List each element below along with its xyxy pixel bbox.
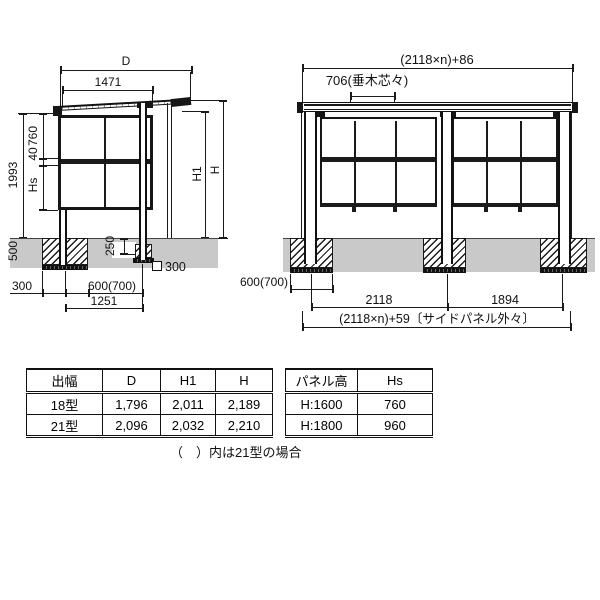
roof-beam-line xyxy=(304,109,571,110)
tick xyxy=(191,66,193,74)
ext-line xyxy=(18,113,58,114)
ext-line xyxy=(190,100,224,101)
ext-line xyxy=(182,111,206,112)
gravel-base xyxy=(42,265,88,270)
ext-line xyxy=(572,72,573,102)
roof-front-edge xyxy=(171,97,192,107)
cell-type: 21型 xyxy=(27,415,103,437)
dim-label-total-top: (2118×n)+86 xyxy=(400,53,474,66)
dim-label-1993: 1993 xyxy=(7,162,19,189)
cell-h1: 2,032 xyxy=(161,415,216,437)
tick xyxy=(142,304,144,312)
square-symbol xyxy=(152,261,162,271)
front-support-line xyxy=(167,103,168,238)
dim-label-300: 300 xyxy=(12,280,32,292)
tick xyxy=(120,238,128,240)
roof-beam-line xyxy=(304,104,571,106)
ext-line xyxy=(302,311,303,331)
dim-label-h: H xyxy=(209,166,221,175)
ext-line xyxy=(60,72,61,107)
dim-label-h1: H1 xyxy=(191,166,203,181)
ext-line xyxy=(302,72,303,102)
dim-label-760: 760 xyxy=(27,126,39,146)
gravel-base xyxy=(540,268,587,273)
table-header-row: パネル高 Hs xyxy=(286,369,433,393)
tick xyxy=(302,64,304,72)
cell-panel-height: H:1800 xyxy=(286,415,358,437)
cell-panel-height: H:1600 xyxy=(286,393,358,415)
col-header-h1: H1 xyxy=(161,369,216,393)
dim-line xyxy=(60,70,192,71)
panel-foot xyxy=(393,207,397,212)
cell-d: 1,796 xyxy=(103,393,161,415)
front-support-line xyxy=(171,103,172,238)
post xyxy=(304,112,317,264)
dim-label-600-700: 600(700) xyxy=(88,280,136,292)
col-header-dehaba: 出幅 xyxy=(27,369,103,393)
spec-table: 出幅 D H1 H 18型 1,796 2,011 2,189 21型 2,09… xyxy=(26,368,273,438)
ext-line xyxy=(39,165,58,166)
dim-label-706: 706(垂木芯々) xyxy=(326,74,408,87)
gravel-base xyxy=(423,268,466,273)
ext-line xyxy=(65,271,66,291)
ext-line xyxy=(311,274,312,310)
panel-mullion xyxy=(354,121,356,203)
roof-end-cap xyxy=(572,102,578,113)
panel-mullion xyxy=(520,121,522,203)
tick xyxy=(572,64,574,72)
dim-label-d: D xyxy=(122,55,131,67)
dim-line xyxy=(350,96,395,97)
tick xyxy=(65,304,67,312)
front-post xyxy=(139,103,147,260)
dim-line xyxy=(311,307,563,308)
table-row: 18型 1,796 2,011 2,189 xyxy=(27,393,273,415)
tick xyxy=(62,86,64,94)
ext-line xyxy=(39,210,58,211)
ext-line xyxy=(142,264,143,308)
cell-type: 18型 xyxy=(27,393,103,415)
table-row: H:1600 760 xyxy=(286,393,433,415)
ext-line xyxy=(42,271,43,291)
dim-line xyxy=(43,113,44,210)
dim-line xyxy=(205,111,206,238)
panel-foot xyxy=(484,207,488,212)
cell-h: 2,189 xyxy=(216,393,273,415)
dim-label-1251: 1251 xyxy=(91,295,118,307)
roof-end-cap xyxy=(297,102,303,113)
ext-line xyxy=(332,274,333,292)
cell-h1: 2,011 xyxy=(161,393,216,415)
gravel-base xyxy=(290,268,333,273)
ext-line xyxy=(120,254,135,255)
panel-rail xyxy=(322,157,435,162)
ext-line xyxy=(562,274,563,310)
table-row: 21型 2,096 2,032 2,210 xyxy=(27,415,273,437)
post xyxy=(558,112,571,264)
dim-label-2118: 2118 xyxy=(366,294,393,307)
cell-hs: 960 xyxy=(358,415,433,437)
col-header-hs: Hs xyxy=(358,369,433,393)
panel-foot xyxy=(518,207,522,212)
side-panel-outer-line xyxy=(571,112,572,238)
rear-post xyxy=(59,210,67,265)
panel-bottom-rail xyxy=(452,203,558,207)
ext-line xyxy=(39,158,58,159)
panel-mullion xyxy=(486,121,488,203)
panel-rail xyxy=(454,157,556,162)
side-panel-outer-line xyxy=(301,112,302,238)
cell-hs: 760 xyxy=(358,393,433,415)
cell-d: 2,096 xyxy=(103,415,161,437)
dim-line xyxy=(302,327,571,328)
panel-bay xyxy=(320,117,437,207)
col-header-h: H xyxy=(216,369,273,393)
ext-line xyxy=(447,274,448,310)
panel-height-table: パネル高 Hs H:1600 760 H:1800 960 xyxy=(285,368,433,438)
dim-label-footing-300: 300 xyxy=(165,261,186,274)
dim-line xyxy=(223,100,224,238)
dim-label-500: 500 xyxy=(7,241,19,261)
panel-rail xyxy=(61,159,150,164)
footnote: （ ）内は21型の場合 xyxy=(170,446,301,459)
dim-label-40: 40 xyxy=(27,147,39,160)
dim-line xyxy=(62,90,153,91)
col-header-d: D xyxy=(103,369,161,393)
tick xyxy=(152,86,154,94)
dim-label-total-bottom: (2118×n)+59〔サイドパネル外々〕 xyxy=(339,313,535,326)
table-header-row: 出幅 D H1 H xyxy=(27,369,273,393)
panel-bay xyxy=(452,117,558,207)
dim-label-hs: Hs xyxy=(27,178,39,193)
ext-line xyxy=(570,311,571,331)
dim-line xyxy=(23,113,24,238)
dim-label-1894: 1894 xyxy=(491,294,519,307)
post xyxy=(441,112,453,264)
dim-label-1471: 1471 xyxy=(95,76,122,88)
dim-label-250: 250 xyxy=(104,236,116,256)
panel-bottom-rail xyxy=(320,203,437,207)
col-header-panel-height: パネル高 xyxy=(286,369,358,393)
panel-foot xyxy=(352,207,356,212)
dim-line xyxy=(10,293,143,294)
dim-line xyxy=(302,68,573,69)
dim-label-600-700: 600(700) xyxy=(228,276,288,288)
ext-line xyxy=(290,274,291,292)
cell-h: 2,210 xyxy=(216,415,273,437)
technical-drawing-canvas: D 1471 760 40 Hs xyxy=(0,0,600,600)
panel-mullion xyxy=(395,121,397,203)
table-row: H:1800 960 xyxy=(286,415,433,437)
dim-line xyxy=(65,308,143,309)
